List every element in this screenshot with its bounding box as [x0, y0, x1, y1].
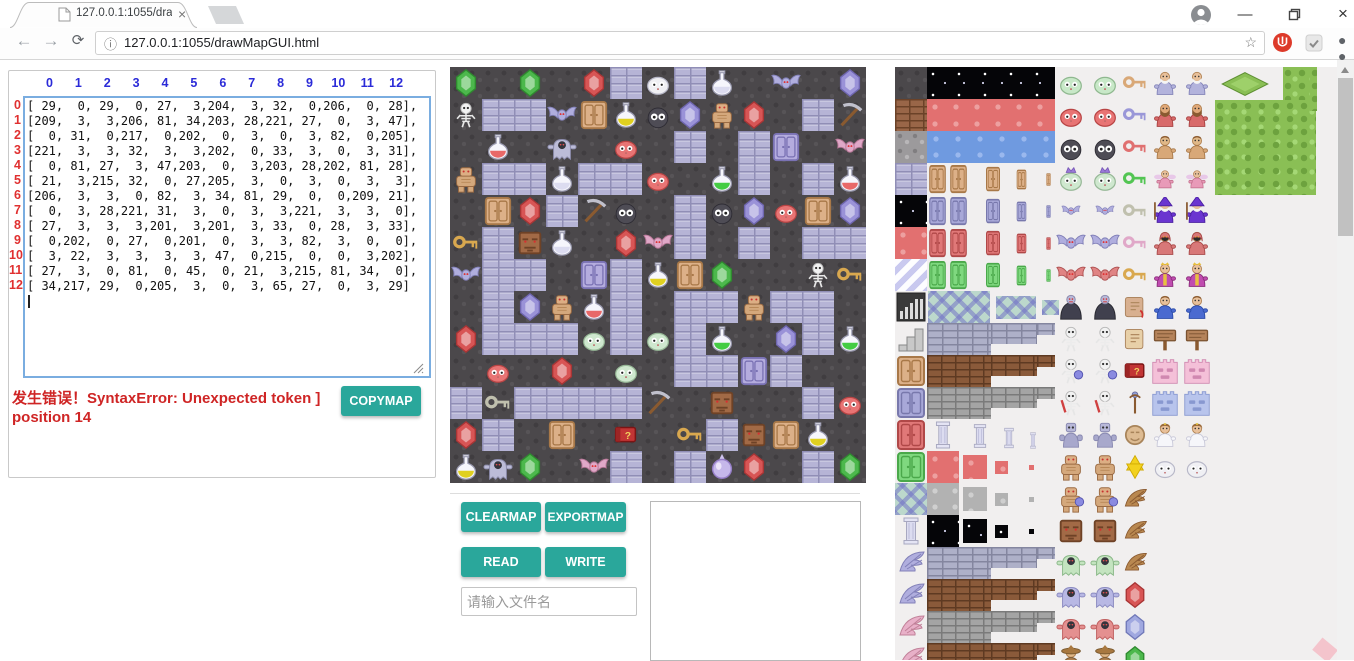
- palette-steps[interactable]: [991, 323, 1037, 344]
- map-tile[interactable]: [578, 419, 610, 451]
- palette-wall-blue[interactable]: [1151, 389, 1179, 422]
- palette-wing-brown[interactable]: [1121, 549, 1149, 582]
- forward-icon[interactable]: →: [39, 31, 63, 51]
- palette-princess[interactable]: [1183, 421, 1211, 454]
- map-tile[interactable]: [642, 323, 674, 355]
- map-tile[interactable]: [674, 227, 706, 259]
- map-tile[interactable]: [834, 131, 866, 163]
- page-scrollbar[interactable]: [1337, 60, 1354, 660]
- palette-boy[interactable]: [1151, 293, 1179, 326]
- palette-swatch[interactable]: [995, 493, 1008, 506]
- map-tile[interactable]: [546, 387, 578, 419]
- palette-ghost-red[interactable]: [1056, 612, 1086, 647]
- map-tile[interactable]: [770, 227, 802, 259]
- map-tile[interactable]: [674, 259, 706, 291]
- palette-wing-pink[interactable]: [895, 643, 927, 660]
- palette-steps[interactable]: [1037, 611, 1055, 623]
- map-tile[interactable]: [834, 163, 866, 195]
- map-tile[interactable]: [514, 99, 546, 131]
- palette-slime-green[interactable]: [1056, 68, 1086, 103]
- map-tile[interactable]: [738, 387, 770, 419]
- palette-floor[interactable]: [895, 67, 927, 99]
- map-tile[interactable]: [642, 259, 674, 291]
- map-tile[interactable]: [546, 163, 578, 195]
- palette-reaper[interactable]: [1151, 229, 1179, 262]
- map-tile[interactable]: [834, 67, 866, 99]
- map-tile[interactable]: [802, 259, 834, 291]
- map-tile[interactable]: [482, 131, 514, 163]
- palette-princess[interactable]: [1151, 421, 1179, 454]
- textarea-resize-grip[interactable]: [413, 363, 424, 374]
- map-tile[interactable]: [578, 227, 610, 259]
- palette-tree[interactable]: [1310, 67, 1317, 111]
- palette-mummy[interactable]: [1056, 452, 1086, 487]
- palette-door-tan[interactable]: [928, 164, 947, 199]
- map-tile[interactable]: [674, 99, 706, 131]
- map-tile[interactable]: [450, 323, 482, 355]
- palette-sign[interactable]: [1151, 325, 1179, 358]
- palette-royal[interactable]: [1151, 261, 1179, 294]
- map-tile[interactable]: [706, 419, 738, 451]
- map-tile[interactable]: [706, 227, 738, 259]
- map-tile[interactable]: [642, 355, 674, 387]
- map-tile[interactable]: [546, 67, 578, 99]
- map-tile[interactable]: [834, 227, 866, 259]
- palette-door-tan[interactable]: [1046, 173, 1051, 191]
- palette-steps[interactable]: [927, 547, 991, 579]
- map-tile[interactable]: [450, 451, 482, 483]
- url-bar[interactable]: ⓘ 127.0.0.1:1055/drawMapGUI.html ☆: [95, 31, 1265, 55]
- map-tile[interactable]: [450, 291, 482, 323]
- map-tile[interactable]: [706, 355, 738, 387]
- map-tile[interactable]: [450, 67, 482, 99]
- map-tile[interactable]: [610, 259, 642, 291]
- map-tile[interactable]: [610, 67, 642, 99]
- map-tile[interactable]: [674, 451, 706, 483]
- export-output-box[interactable]: [650, 501, 861, 661]
- filename-input[interactable]: [461, 587, 637, 616]
- map-tile[interactable]: [706, 259, 738, 291]
- palette-door-green[interactable]: [1016, 265, 1027, 291]
- map-tile[interactable]: [482, 67, 514, 99]
- palette-elder[interactable]: [1183, 69, 1211, 102]
- map-tile[interactable]: [578, 163, 610, 195]
- palette-fighter[interactable]: [1183, 133, 1211, 166]
- map-tile[interactable]: [802, 195, 834, 227]
- palette-lattice[interactable]: [928, 291, 990, 323]
- map-tile[interactable]: [610, 387, 642, 419]
- palette-medallion[interactable]: [1121, 421, 1149, 454]
- palette-door-red[interactable]: [985, 230, 1001, 261]
- map-tile[interactable]: [546, 451, 578, 483]
- map-tile[interactable]: [514, 67, 546, 99]
- palette-swatch[interactable]: [927, 451, 959, 483]
- map-tile[interactable]: [450, 195, 482, 227]
- palette-starfield[interactable]: [895, 195, 927, 227]
- palette-robot[interactable]: [1056, 420, 1086, 455]
- palette-mummy[interactable]: [1090, 452, 1120, 487]
- palette-door-tan[interactable]: [1016, 169, 1027, 195]
- map-tile[interactable]: [770, 131, 802, 163]
- palette-steps[interactable]: [991, 547, 1037, 568]
- palette-slime-crown[interactable]: [1090, 164, 1120, 199]
- map-tile[interactable]: [738, 227, 770, 259]
- map-tile[interactable]: [674, 355, 706, 387]
- map-tile[interactable]: [610, 227, 642, 259]
- map-tile[interactable]: [482, 451, 514, 483]
- map-tile[interactable]: [674, 387, 706, 419]
- map-tile[interactable]: [770, 163, 802, 195]
- map-tile[interactable]: [450, 131, 482, 163]
- map-tile[interactable]: [738, 259, 770, 291]
- map-tile[interactable]: [834, 259, 866, 291]
- palette-hatman[interactable]: [1090, 644, 1120, 660]
- palette-ghost-purple[interactable]: [1056, 580, 1086, 615]
- palette-gem-red[interactable]: [1121, 581, 1149, 614]
- map-tile[interactable]: [578, 259, 610, 291]
- map-tile[interactable]: [482, 99, 514, 131]
- map-tile[interactable]: [802, 131, 834, 163]
- profile-icon[interactable]: [1190, 4, 1212, 26]
- map-tile[interactable]: [802, 323, 834, 355]
- palette-door-green[interactable]: [1046, 269, 1051, 287]
- map-tile[interactable]: [482, 355, 514, 387]
- palette-face[interactable]: [1056, 516, 1086, 551]
- palette-swatch[interactable]: [1029, 465, 1034, 470]
- palette-swatch[interactable]: [995, 461, 1008, 474]
- palette-wall-pink[interactable]: [1183, 357, 1211, 390]
- palette-steps[interactable]: [927, 387, 991, 419]
- map-tile[interactable]: [482, 195, 514, 227]
- palette-fairy[interactable]: [1183, 165, 1211, 198]
- map-tile[interactable]: [482, 387, 514, 419]
- map-tile[interactable]: [642, 419, 674, 451]
- map-tile[interactable]: [514, 291, 546, 323]
- map-tile[interactable]: [482, 323, 514, 355]
- palette-face[interactable]: [1090, 516, 1120, 551]
- map-tile[interactable]: [834, 99, 866, 131]
- map-tile[interactable]: ?: [610, 419, 642, 451]
- map-tile[interactable]: [514, 163, 546, 195]
- map-tile[interactable]: [450, 227, 482, 259]
- map-tile[interactable]: [674, 131, 706, 163]
- palette-stripes[interactable]: [895, 259, 927, 291]
- map-tile[interactable]: [610, 355, 642, 387]
- palette-ghost-green[interactable]: [1090, 548, 1120, 583]
- palette-scroll-tan[interactable]: [1121, 325, 1149, 358]
- palette-reaper[interactable]: [1183, 229, 1211, 262]
- palette-bat-red[interactable]: [1056, 260, 1086, 295]
- palette-slime-green[interactable]: [1090, 68, 1120, 103]
- palette-mummy-shield[interactable]: [1090, 484, 1120, 519]
- site-info-icon[interactable]: ⓘ: [104, 34, 117, 53]
- map-tile[interactable]: [674, 419, 706, 451]
- map-tile[interactable]: [706, 195, 738, 227]
- palette-scroll-red[interactable]: [1121, 293, 1149, 326]
- map-tile[interactable]: [738, 451, 770, 483]
- map-tile[interactable]: [450, 163, 482, 195]
- palette-door-blue[interactable]: [1016, 201, 1027, 227]
- palette-steps[interactable]: [1037, 355, 1055, 367]
- write-button[interactable]: WRITE: [545, 547, 626, 577]
- palette-wall-pink[interactable]: [1151, 357, 1179, 390]
- palette-lattice[interactable]: [996, 296, 1036, 319]
- map-tile[interactable]: [578, 99, 610, 131]
- window-close-button[interactable]: ×: [1328, 0, 1354, 28]
- palette-steps[interactable]: [991, 643, 1037, 660]
- map-tile[interactable]: [834, 387, 866, 419]
- map-tile[interactable]: [738, 419, 770, 451]
- map-tile[interactable]: [738, 163, 770, 195]
- palette-dwarf[interactable]: [1151, 101, 1179, 134]
- map-tile[interactable]: [642, 163, 674, 195]
- palette-hatman[interactable]: [1056, 644, 1086, 660]
- map-tile[interactable]: [802, 227, 834, 259]
- palette-key-pink[interactable]: [1121, 229, 1149, 262]
- palette-key-blue[interactable]: [1121, 101, 1149, 134]
- palette-steps[interactable]: [991, 579, 1037, 600]
- map-tile[interactable]: [546, 419, 578, 451]
- palette-eyeball[interactable]: [1056, 132, 1086, 167]
- map-tile[interactable]: [546, 131, 578, 163]
- map-tile[interactable]: [834, 419, 866, 451]
- palette-key-tan[interactable]: [1121, 69, 1149, 102]
- palette-slime-white[interactable]: [1183, 453, 1211, 486]
- palette-swatch[interactable]: [1029, 529, 1034, 534]
- map-tile[interactable]: [674, 323, 706, 355]
- map-tile[interactable]: [706, 323, 738, 355]
- palette-ghost-purple[interactable]: [1090, 580, 1120, 615]
- map-tile[interactable]: [546, 259, 578, 291]
- palette-door-blue[interactable]: [985, 198, 1001, 229]
- scrollbar-up-icon[interactable]: [1341, 67, 1349, 73]
- palette-boy[interactable]: [1183, 293, 1211, 326]
- map-tile[interactable]: [802, 419, 834, 451]
- palette-door-green[interactable]: [928, 260, 947, 295]
- map-tile[interactable]: [802, 387, 834, 419]
- palette-door-red[interactable]: [949, 228, 968, 263]
- palette-wing-brown[interactable]: [1121, 517, 1149, 550]
- map-tile[interactable]: [450, 419, 482, 451]
- map-tile[interactable]: [546, 291, 578, 323]
- new-tab-button[interactable]: [208, 6, 244, 24]
- map-tile[interactable]: [642, 131, 674, 163]
- palette-bat-small[interactable]: [1090, 196, 1120, 231]
- tab-close-icon[interactable]: ×: [178, 6, 186, 22]
- clearmap-button[interactable]: CLEARMAP: [461, 502, 541, 532]
- palette-gem-green[interactable]: [1121, 645, 1149, 660]
- palette-door-red[interactable]: [1016, 233, 1027, 259]
- map-tile[interactable]: [770, 259, 802, 291]
- map-tile[interactable]: [802, 99, 834, 131]
- map-tile[interactable]: [706, 67, 738, 99]
- map-tile[interactable]: [482, 163, 514, 195]
- palette-swatch[interactable]: [995, 525, 1008, 538]
- map-tile[interactable]: [770, 99, 802, 131]
- palette-brickbrown[interactable]: [895, 99, 927, 131]
- palette-slime-white[interactable]: [1151, 453, 1179, 486]
- map-tile[interactable]: [802, 451, 834, 483]
- palette-skeleton-shield[interactable]: [1056, 356, 1086, 391]
- palette-skeleton[interactable]: [1056, 324, 1086, 359]
- map-tile[interactable]: [450, 355, 482, 387]
- map-tile[interactable]: [674, 67, 706, 99]
- map-tile[interactable]: [770, 355, 802, 387]
- palette-ghost-red[interactable]: [1090, 612, 1120, 647]
- map-tile[interactable]: [546, 227, 578, 259]
- map-tile[interactable]: [706, 131, 738, 163]
- palette-pillar[interactable]: [1027, 431, 1039, 455]
- map-tile[interactable]: [514, 131, 546, 163]
- map-tile[interactable]: [514, 227, 546, 259]
- map-tile[interactable]: [514, 451, 546, 483]
- palette-dwarf[interactable]: [1183, 101, 1211, 134]
- palette-wing-brown[interactable]: [1121, 485, 1149, 518]
- palette-door-tan[interactable]: [949, 164, 968, 199]
- palette-steps[interactable]: [927, 323, 991, 355]
- read-button[interactable]: READ: [461, 547, 541, 577]
- palette-wizard[interactable]: [1151, 197, 1179, 230]
- map-tile[interactable]: [610, 195, 642, 227]
- palette-skeleton-sword[interactable]: [1056, 388, 1086, 423]
- map-tile[interactable]: [642, 67, 674, 99]
- map-tile[interactable]: [770, 195, 802, 227]
- palette-key-red[interactable]: [1121, 133, 1149, 166]
- map-tile[interactable]: [546, 355, 578, 387]
- palette-mummy-shield[interactable]: [1056, 484, 1086, 519]
- palette-eyeball[interactable]: [1090, 132, 1120, 167]
- map-tile[interactable]: [642, 291, 674, 323]
- exportmap-button[interactable]: EXPORTMAP: [545, 502, 626, 532]
- map-tile[interactable]: [482, 227, 514, 259]
- palette-steps[interactable]: [927, 355, 991, 387]
- palette-fairy[interactable]: [1151, 165, 1179, 198]
- map-tile[interactable]: [610, 131, 642, 163]
- palette-slime-crown[interactable]: [1056, 164, 1086, 199]
- map-tile[interactable]: [738, 291, 770, 323]
- map-tile[interactable]: [450, 387, 482, 419]
- palette-steps[interactable]: [1037, 547, 1055, 559]
- map-tile[interactable]: [546, 323, 578, 355]
- palette-door-red[interactable]: [928, 228, 947, 263]
- palette-steps[interactable]: [1037, 323, 1055, 335]
- map-tile[interactable]: [578, 67, 610, 99]
- map-tile[interactable]: [482, 291, 514, 323]
- map-tile[interactable]: [738, 131, 770, 163]
- map-tile[interactable]: [578, 323, 610, 355]
- minimize-button[interactable]: —: [1230, 0, 1260, 28]
- map-tile[interactable]: [674, 163, 706, 195]
- palette-bush[interactable]: [1219, 71, 1271, 102]
- map-tile[interactable]: [738, 195, 770, 227]
- palette-steps[interactable]: [927, 611, 991, 643]
- map-tile[interactable]: [738, 67, 770, 99]
- map-tile[interactable]: [706, 163, 738, 195]
- palette-skeleton-sword[interactable]: [1090, 388, 1120, 423]
- refresh-icon[interactable]: ⟳: [66, 31, 90, 49]
- palette-door-red[interactable]: [1046, 237, 1051, 255]
- palette-gem-blue[interactable]: [1121, 613, 1149, 646]
- palette-door-green[interactable]: [985, 262, 1001, 293]
- map-tile[interactable]: [514, 195, 546, 227]
- palette-door-tan[interactable]: [985, 166, 1001, 197]
- palette-swatch[interactable]: [963, 487, 987, 511]
- palette-skeleton-shield[interactable]: [1090, 356, 1120, 391]
- map-tile[interactable]: [738, 323, 770, 355]
- palette-bat-red[interactable]: [1090, 260, 1120, 295]
- palette-block[interactable]: [927, 131, 1055, 163]
- palette-wall[interactable]: [895, 163, 927, 195]
- palette-steps[interactable]: [1037, 579, 1055, 591]
- map-tile[interactable]: [770, 451, 802, 483]
- map-tile[interactable]: [610, 163, 642, 195]
- map-tile[interactable]: [578, 355, 610, 387]
- url-text[interactable]: 127.0.0.1:1055/drawMapGUI.html: [124, 35, 319, 50]
- palette-tree[interactable]: [1215, 100, 1316, 195]
- palette-bat-purple[interactable]: [1090, 228, 1120, 263]
- palette-steps[interactable]: [991, 611, 1037, 632]
- map-tile[interactable]: [738, 355, 770, 387]
- palette-block[interactable]: [927, 99, 1055, 131]
- palette-door-blue[interactable]: [1046, 205, 1051, 223]
- palette-elder[interactable]: [1151, 69, 1179, 102]
- map-tile[interactable]: [802, 163, 834, 195]
- map-tile[interactable]: [514, 419, 546, 451]
- map-tile[interactable]: [706, 291, 738, 323]
- map-tile[interactable]: [578, 131, 610, 163]
- map-tile[interactable]: [546, 195, 578, 227]
- map-tile[interactable]: [642, 195, 674, 227]
- map-tile[interactable]: [706, 99, 738, 131]
- map-tile[interactable]: [578, 451, 610, 483]
- map-tile[interactable]: [834, 451, 866, 483]
- tileset-palette[interactable]: ?: [895, 67, 1337, 660]
- palette-stonegray[interactable]: [895, 131, 927, 163]
- map-tile[interactable]: [834, 323, 866, 355]
- map-tile[interactable]: [770, 291, 802, 323]
- back-icon[interactable]: ←: [12, 31, 36, 51]
- map-tile[interactable]: [450, 99, 482, 131]
- copymap-button[interactable]: COPYMAP: [341, 386, 421, 416]
- palette-door-green[interactable]: [949, 260, 968, 295]
- palette-skeleton[interactable]: [1090, 324, 1120, 359]
- map-tile[interactable]: [834, 195, 866, 227]
- palette-sign[interactable]: [1183, 325, 1211, 358]
- palette-staff[interactable]: [1121, 389, 1149, 422]
- palette-key-silver[interactable]: [1121, 197, 1149, 230]
- map-tile[interactable]: [834, 291, 866, 323]
- map-tile[interactable]: [450, 259, 482, 291]
- palette-redpat[interactable]: [895, 227, 927, 259]
- restore-button[interactable]: [1280, 0, 1310, 28]
- palette-swatch[interactable]: [1029, 497, 1034, 502]
- palette-bat-small[interactable]: [1056, 196, 1086, 231]
- map-tile[interactable]: [642, 99, 674, 131]
- palette-vampire[interactable]: [1056, 292, 1086, 327]
- palette-steps[interactable]: [991, 355, 1037, 376]
- palette-steps[interactable]: [1037, 387, 1055, 399]
- palette-swatch[interactable]: [927, 515, 959, 547]
- map-canvas[interactable]: ?: [450, 67, 866, 483]
- map-tile[interactable]: [770, 387, 802, 419]
- palette-slime-red[interactable]: [1090, 100, 1120, 135]
- palette-star[interactable]: [1121, 453, 1149, 486]
- palette-wizard[interactable]: [1183, 197, 1211, 230]
- palette-steps[interactable]: [1037, 643, 1055, 655]
- palette-pillar[interactable]: [999, 426, 1019, 455]
- palette-steps[interactable]: [991, 387, 1037, 408]
- map-tile[interactable]: [674, 195, 706, 227]
